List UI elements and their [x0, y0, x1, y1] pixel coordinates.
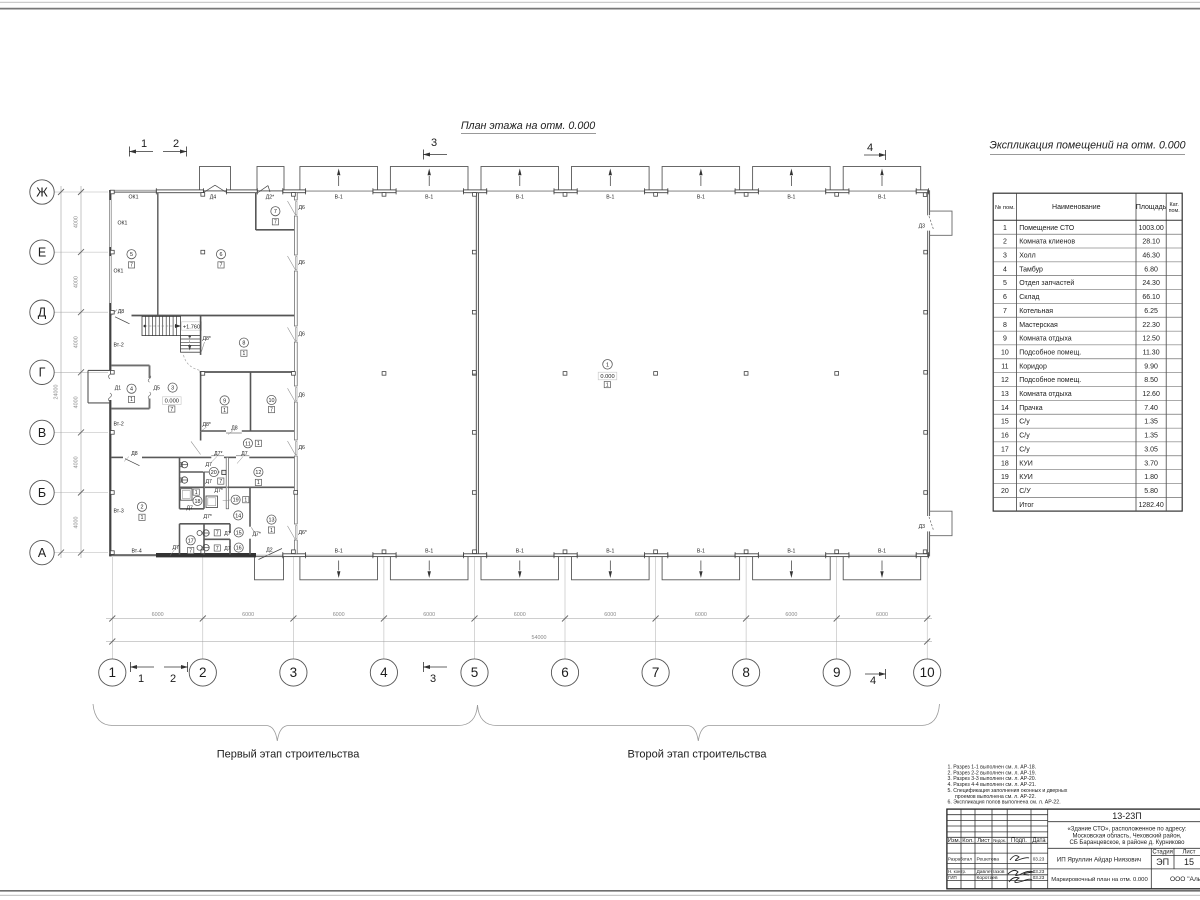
svg-text:В: В — [38, 426, 46, 440]
svg-text:6. Экспликация полов выполнена: 6. Экспликация полов выполнена см. л. АР… — [948, 800, 1061, 806]
svg-text:С/у: С/у — [1019, 419, 1030, 426]
svg-text:Д6*: Д6* — [299, 530, 307, 536]
svg-text:3.70: 3.70 — [1144, 460, 1158, 467]
svg-text:13: 13 — [269, 518, 275, 524]
svg-text:3: 3 — [430, 673, 436, 685]
svg-text:7: 7 — [189, 548, 192, 554]
svg-text:Д2: Д2 — [266, 548, 273, 554]
svg-text:7: 7 — [274, 209, 277, 215]
svg-text:11: 11 — [1001, 363, 1008, 370]
svg-text:Д6: Д6 — [299, 445, 306, 451]
svg-text:1003.00: 1003.00 — [1138, 225, 1163, 232]
svg-text:Д8: Д8 — [118, 309, 125, 315]
svg-text:Вт-2: Вт-2 — [114, 343, 124, 349]
svg-text:В-1: В-1 — [335, 194, 343, 200]
svg-text:20: 20 — [211, 470, 217, 476]
svg-text:5: 5 — [471, 665, 479, 680]
svg-text:12.60: 12.60 — [1142, 391, 1160, 398]
svg-text:9: 9 — [1003, 336, 1007, 343]
svg-text:3: 3 — [290, 665, 298, 680]
svg-text:24.30: 24.30 — [1142, 280, 1160, 287]
svg-text:В-1: В-1 — [425, 549, 433, 555]
svg-text:Кол.: Кол. — [962, 838, 974, 844]
svg-text:Д6: Д6 — [299, 331, 306, 337]
svg-text:Площадь: Площадь — [1136, 204, 1167, 211]
svg-text:2: 2 — [141, 505, 144, 511]
svg-text:Д7: Д7 — [224, 546, 231, 552]
svg-text:Мастерская: Мастерская — [1019, 322, 1058, 329]
svg-text:6: 6 — [561, 665, 569, 680]
svg-text:6000: 6000 — [242, 612, 254, 618]
svg-text:С/У: С/У — [1019, 488, 1031, 495]
svg-text:6000: 6000 — [785, 612, 797, 618]
svg-text:12: 12 — [255, 470, 261, 476]
svg-text:Коротаев: Коротаев — [977, 875, 999, 881]
svg-text:1: 1 — [195, 490, 198, 496]
svg-text:19: 19 — [233, 498, 239, 504]
svg-text:Склад: Склад — [1019, 294, 1039, 301]
svg-text:66.10: 66.10 — [1142, 294, 1160, 301]
svg-text:9: 9 — [833, 665, 841, 680]
svg-text:5: 5 — [130, 252, 133, 258]
svg-text:1.35: 1.35 — [1144, 433, 1158, 440]
svg-text:ОК1: ОК1 — [129, 194, 139, 200]
svg-text:Подсобное помещ.: Подсобное помещ. — [1019, 376, 1081, 384]
svg-text:Д7*: Д7* — [253, 531, 261, 537]
svg-text:Второй этап строительства: Второй этап строительства — [628, 749, 768, 761]
svg-text:Вт-3: Вт-3 — [114, 509, 124, 515]
svg-text:С/у: С/у — [1019, 433, 1030, 440]
svg-text:15: 15 — [1001, 419, 1009, 426]
svg-text:4: 4 — [130, 387, 133, 393]
svg-text:№ пом.: № пом. — [995, 205, 1015, 211]
svg-text:Комната отдыха: Комната отдыха — [1019, 336, 1072, 343]
svg-text:4: 4 — [380, 665, 388, 680]
svg-text:В-1: В-1 — [335, 549, 343, 555]
svg-text:Вт-4: Вт-4 — [132, 548, 142, 554]
svg-text:1: 1 — [141, 515, 144, 521]
svg-text:03.23: 03.23 — [1033, 857, 1045, 862]
svg-text:В-1: В-1 — [787, 549, 795, 555]
svg-text:1: 1 — [244, 498, 247, 504]
svg-text:1: 1 — [606, 382, 609, 388]
svg-text:В-1: В-1 — [606, 194, 614, 200]
svg-text:3: 3 — [171, 386, 174, 392]
svg-text:5: 5 — [1003, 280, 1007, 287]
svg-text:1: 1 — [257, 441, 260, 447]
svg-text:10: 10 — [920, 665, 935, 680]
svg-text:14: 14 — [1001, 405, 1009, 412]
svg-text:Первый этап строительства: Первый этап строительства — [217, 749, 361, 761]
svg-text:Котельная: Котельная — [1019, 308, 1053, 315]
svg-text:Прачка: Прачка — [1019, 405, 1043, 412]
svg-text:В-1: В-1 — [787, 194, 795, 200]
svg-text:4: 4 — [867, 142, 873, 154]
svg-text:13: 13 — [1001, 391, 1009, 398]
svg-text:КУИ: КУИ — [1019, 474, 1033, 481]
svg-text:С/у: С/у — [1019, 446, 1030, 453]
svg-text:20: 20 — [1001, 488, 1009, 495]
svg-text:11: 11 — [245, 441, 251, 447]
svg-text:КУИ: КУИ — [1019, 460, 1033, 467]
svg-text:ООО "Альфа: ООО "Альфа — [1170, 876, 1200, 883]
svg-text:13-23П: 13-23П — [1112, 811, 1142, 821]
svg-text:6: 6 — [1003, 294, 1007, 301]
svg-text:7: 7 — [216, 531, 219, 537]
svg-text:17: 17 — [1001, 446, 1009, 453]
svg-text:Комната отдыха: Комната отдыха — [1019, 391, 1072, 398]
svg-text:1: 1 — [1003, 225, 1007, 232]
svg-text:Изм.: Изм. — [948, 838, 961, 844]
svg-text:7: 7 — [270, 407, 273, 413]
svg-text:28.10: 28.10 — [1142, 239, 1160, 246]
svg-text:18: 18 — [195, 499, 201, 505]
svg-text:7: 7 — [219, 479, 222, 485]
svg-text:План этажа на отм. 0.000: План этажа на отм. 0.000 — [461, 120, 595, 132]
svg-text:В-1: В-1 — [516, 194, 524, 200]
svg-text:1: 1 — [243, 351, 246, 357]
svg-text:Подп.: Подп. — [1011, 838, 1027, 844]
svg-text:Ж: Ж — [36, 185, 48, 199]
svg-text:пом.: пом. — [1169, 208, 1180, 214]
svg-text:19: 19 — [1001, 474, 1009, 481]
svg-text:В-1: В-1 — [878, 549, 886, 555]
svg-text:Д7: Д7 — [206, 462, 213, 468]
svg-text:8: 8 — [242, 341, 245, 347]
svg-text:4000: 4000 — [74, 216, 80, 228]
svg-text:Итог: Итог — [1019, 502, 1034, 509]
svg-text:4000: 4000 — [74, 396, 80, 408]
svg-text:4000: 4000 — [74, 456, 80, 468]
svg-text:10: 10 — [269, 398, 275, 404]
svg-text:Лист: Лист — [977, 838, 990, 844]
svg-text:7: 7 — [220, 263, 223, 269]
svg-text:6.25: 6.25 — [1144, 308, 1158, 315]
svg-text:Д7*: Д7* — [215, 488, 223, 494]
svg-text:ЭП: ЭП — [1156, 857, 1169, 867]
svg-text:Стадия: Стадия — [1152, 850, 1172, 856]
svg-text:Маркировочный план на отм. 0.0: Маркировочный план на отм. 0.000 — [1051, 876, 1148, 883]
svg-text:11.30: 11.30 — [1143, 350, 1160, 357]
svg-text:ГИП: ГИП — [948, 875, 957, 880]
svg-text:Д3: Д3 — [919, 223, 926, 229]
svg-text:Д3: Д3 — [919, 524, 926, 530]
svg-text:6.80: 6.80 — [1144, 266, 1158, 273]
svg-text:03.23: 03.23 — [1033, 875, 1045, 880]
svg-text:2: 2 — [170, 673, 176, 685]
svg-text:В-1: В-1 — [697, 549, 705, 555]
svg-text:18: 18 — [1001, 460, 1009, 467]
svg-text:Экспликация помещений на отм.: Экспликация помещений на отм. 0.000 — [990, 140, 1186, 152]
svg-text:А: А — [38, 546, 47, 560]
svg-text:1: 1 — [109, 665, 117, 680]
svg-text:9: 9 — [223, 398, 226, 404]
svg-text:ОК1: ОК1 — [114, 269, 124, 275]
svg-text:1: 1 — [141, 138, 147, 150]
svg-text:Д2*: Д2* — [266, 195, 274, 201]
svg-text:Б: Б — [38, 486, 46, 500]
svg-text:Д5: Д5 — [154, 386, 161, 392]
svg-text:15: 15 — [1184, 857, 1194, 867]
svg-text:1: 1 — [606, 362, 609, 368]
svg-text:16: 16 — [236, 546, 242, 552]
svg-text:4: 4 — [870, 675, 876, 687]
svg-text:Отдел запчастей: Отдел запчастей — [1019, 279, 1074, 287]
svg-text:4000: 4000 — [74, 336, 80, 348]
svg-text:6000: 6000 — [604, 612, 616, 618]
svg-text:12.50: 12.50 — [1142, 336, 1160, 343]
svg-text:54000: 54000 — [532, 635, 547, 641]
svg-text:3: 3 — [431, 137, 437, 149]
svg-text:Тамбур: Тамбур — [1019, 265, 1043, 273]
svg-text:6000: 6000 — [514, 612, 526, 618]
svg-text:6000: 6000 — [695, 612, 707, 618]
svg-text:1: 1 — [130, 397, 133, 403]
svg-text:Вт-2: Вт-2 — [114, 422, 124, 428]
svg-text:В-1: В-1 — [425, 194, 433, 200]
svg-text:Д4: Д4 — [210, 195, 217, 201]
svg-text:3.05: 3.05 — [1144, 446, 1158, 453]
svg-text:Давлетгазов: Давлетгазов — [977, 869, 1005, 875]
svg-text:10: 10 — [1001, 350, 1009, 357]
svg-text:1: 1 — [138, 673, 144, 685]
svg-text:Помещение СТО: Помещение СТО — [1019, 225, 1075, 232]
svg-text:1: 1 — [223, 408, 226, 414]
svg-text:7: 7 — [216, 546, 219, 552]
svg-text:4000: 4000 — [74, 517, 80, 529]
svg-text:7: 7 — [1003, 308, 1007, 315]
svg-text:Наименование: Наименование — [1052, 204, 1101, 211]
svg-text:24000: 24000 — [54, 385, 60, 400]
svg-text:4000: 4000 — [74, 276, 80, 288]
svg-text:1: 1 — [270, 528, 273, 534]
svg-text:1: 1 — [257, 480, 260, 486]
svg-text:Д6: Д6 — [299, 392, 306, 398]
svg-text:ИП Яруллин Айдар Ниязович: ИП Яруллин Айдар Ниязович — [1057, 857, 1141, 864]
svg-text:7: 7 — [130, 263, 133, 269]
svg-text:Разработал: Разработал — [948, 857, 972, 862]
svg-text:Дата: Дата — [1032, 838, 1046, 844]
svg-text:6: 6 — [220, 252, 223, 258]
svg-text:Д7*: Д7* — [204, 514, 212, 520]
svg-text:Д7: Д7 — [241, 451, 248, 457]
svg-text:8.50: 8.50 — [1144, 377, 1158, 384]
svg-text:6000: 6000 — [152, 612, 164, 618]
svg-text:22.30: 22.30 — [1142, 322, 1160, 329]
svg-text:12: 12 — [1001, 377, 1009, 384]
svg-text:Д8: Д8 — [131, 451, 138, 457]
svg-text:+1.760: +1.760 — [183, 324, 200, 330]
svg-text:7: 7 — [652, 665, 660, 680]
svg-text:Д8: Д8 — [231, 425, 238, 431]
svg-text:Д1: Д1 — [115, 386, 122, 392]
svg-text:5.80: 5.80 — [1144, 488, 1158, 495]
svg-text:Коридор: Коридор — [1019, 363, 1047, 370]
svg-text:СБ Баранцевское, в районе д. К: СБ Баранцевское, в районе д. Курниково — [1069, 839, 1185, 846]
svg-text:Д6: Д6 — [299, 260, 306, 266]
svg-text:Холл: Холл — [1019, 253, 1035, 260]
svg-text:В-1: В-1 — [606, 549, 614, 555]
svg-text:46.30: 46.30 — [1142, 253, 1160, 260]
svg-text:Д8*: Д8* — [203, 336, 211, 342]
svg-text:ОК1: ОК1 — [118, 221, 128, 227]
svg-text:7.40: 7.40 — [1144, 405, 1158, 412]
svg-text:Кат.: Кат. — [1170, 202, 1179, 208]
svg-text:6000: 6000 — [333, 612, 345, 618]
svg-text:Д7: Д7 — [187, 505, 194, 511]
svg-text:1282.40: 1282.40 — [1138, 502, 1163, 509]
svg-text:Лист: Лист — [1182, 850, 1195, 856]
svg-text:Д7*: Д7* — [214, 451, 222, 457]
svg-text:4: 4 — [1003, 266, 1007, 273]
svg-text:1.80: 1.80 — [1144, 474, 1158, 481]
svg-text:Комната клиенов: Комната клиенов — [1019, 239, 1075, 246]
svg-text:В-1: В-1 — [516, 549, 524, 555]
svg-text:14: 14 — [235, 513, 241, 519]
svg-text:Д: Д — [38, 306, 47, 320]
svg-text:6000: 6000 — [876, 612, 888, 618]
svg-text:7: 7 — [170, 407, 173, 413]
svg-text:03.23: 03.23 — [1033, 869, 1045, 874]
svg-text:3: 3 — [1003, 253, 1007, 260]
svg-text:Г: Г — [39, 366, 46, 380]
svg-text:2: 2 — [173, 138, 179, 150]
svg-text:8: 8 — [742, 665, 750, 680]
svg-text:«Здание СТО», расположенное по: «Здание СТО», расположенное по адресу: — [1067, 827, 1186, 833]
svg-text:8: 8 — [1003, 322, 1007, 329]
svg-text:2: 2 — [1003, 239, 1007, 246]
svg-text:Д7: Д7 — [224, 531, 231, 537]
svg-text:Д7: Д7 — [206, 479, 213, 485]
svg-text:9.90: 9.90 — [1144, 363, 1158, 370]
svg-text:16: 16 — [1001, 433, 1009, 440]
svg-text:0.000: 0.000 — [165, 399, 179, 405]
svg-text:Н. контр.: Н. контр. — [948, 869, 966, 874]
svg-text:7: 7 — [274, 220, 277, 226]
svg-text:№док.: №док. — [993, 838, 1006, 843]
svg-text:0.000: 0.000 — [600, 374, 614, 380]
svg-text:Решетова: Решетова — [977, 857, 1000, 863]
svg-text:Д8*: Д8* — [203, 422, 211, 428]
svg-text:В-1: В-1 — [878, 194, 886, 200]
svg-text:17: 17 — [188, 538, 194, 544]
svg-text:Подсобное помещ.: Подсобное помещ. — [1019, 349, 1081, 357]
svg-text:6000: 6000 — [423, 612, 435, 618]
svg-text:В-1: В-1 — [697, 194, 705, 200]
svg-text:Московская область, Чеховский: Московская область, Чеховский район, — [1072, 832, 1181, 839]
svg-text:15: 15 — [236, 530, 242, 536]
svg-text:1.35: 1.35 — [1144, 419, 1158, 426]
svg-text:2: 2 — [199, 665, 207, 680]
svg-text:Д6: Д6 — [299, 205, 306, 211]
svg-text:Е: Е — [38, 246, 46, 260]
